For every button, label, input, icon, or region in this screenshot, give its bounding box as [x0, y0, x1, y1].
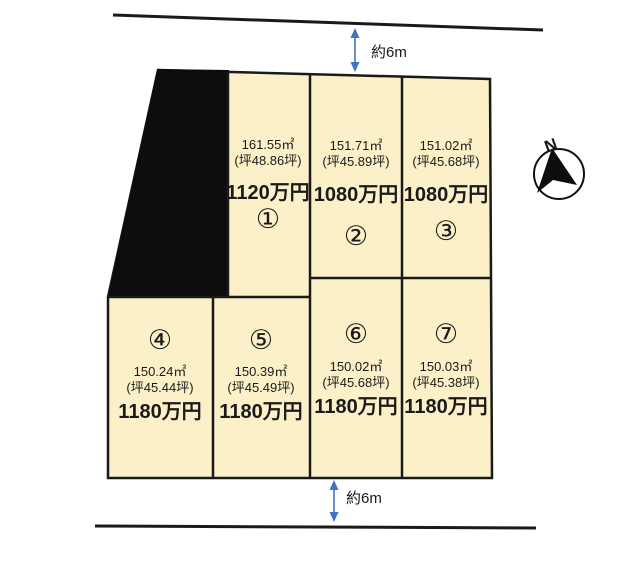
plot-map-svg: 161.55㎡ (坪48.86坪) 1120万円 ① 151.71㎡ (坪45.… [0, 0, 640, 557]
plot-5-number: ⑤ [249, 325, 273, 355]
bottom-road-width-arrow: 約6m [330, 480, 382, 522]
plot-5-area: 150.39㎡ [235, 364, 288, 379]
plot-4-area: 150.24㎡ [134, 364, 187, 379]
plot-3-tsubo: (坪45.68坪) [412, 154, 479, 169]
plot-1-tsubo: (坪48.86坪) [234, 153, 301, 168]
bottom-arrow-head-down [330, 512, 339, 522]
reserved-black-area [109, 70, 228, 297]
plot-7-area: 150.03㎡ [420, 359, 473, 374]
plot-2-number: ② [344, 221, 368, 251]
plot-7-tsubo: (坪45.38坪) [412, 375, 479, 390]
plot-2-area: 151.71㎡ [330, 138, 383, 153]
bottom-road-width-label: 約6m [346, 490, 382, 507]
plot-3-area: 151.02㎡ [420, 138, 473, 153]
plot-7-number: ⑦ [434, 319, 458, 349]
plot-6-price: 1180万円 [314, 396, 397, 418]
plot-6-number: ⑥ [344, 319, 368, 349]
north-compass-icon: N [534, 135, 584, 199]
plot-5-price: 1180万円 [219, 401, 302, 423]
plot-7-price: 1180万円 [404, 396, 487, 418]
plot-5-tsubo: (坪45.49坪) [227, 380, 294, 395]
plot-2-tsubo: (坪45.89坪) [322, 154, 389, 169]
plot-3-price: 1080万円 [404, 184, 489, 206]
plot-6-tsubo: (坪45.68坪) [322, 375, 389, 390]
land-plot-diagram: 161.55㎡ (坪48.86坪) 1120万円 ① 151.71㎡ (坪45.… [0, 0, 640, 557]
top-road-width-label: 約6m [371, 44, 407, 61]
plot-4-number: ④ [148, 325, 172, 355]
plot-4-price: 1180万円 [118, 401, 201, 423]
road-top-line [113, 15, 543, 30]
plot-4-tsubo: (坪45.44坪) [126, 380, 193, 395]
plot-2-price: 1080万円 [314, 184, 399, 206]
top-arrow-head-down [351, 62, 360, 72]
plot-1-area: 161.55㎡ [242, 137, 295, 152]
top-arrow-head-up [351, 28, 360, 38]
top-road-width-arrow: 約6m [351, 28, 407, 72]
plot-1-price: 1120万円 [226, 182, 309, 204]
plot-6-area: 150.02㎡ [330, 359, 383, 374]
road-bottom-line [95, 526, 536, 528]
plot-3-number: ③ [434, 216, 458, 246]
bottom-arrow-head-up [330, 480, 339, 490]
plot-1-number: ① [256, 204, 280, 234]
